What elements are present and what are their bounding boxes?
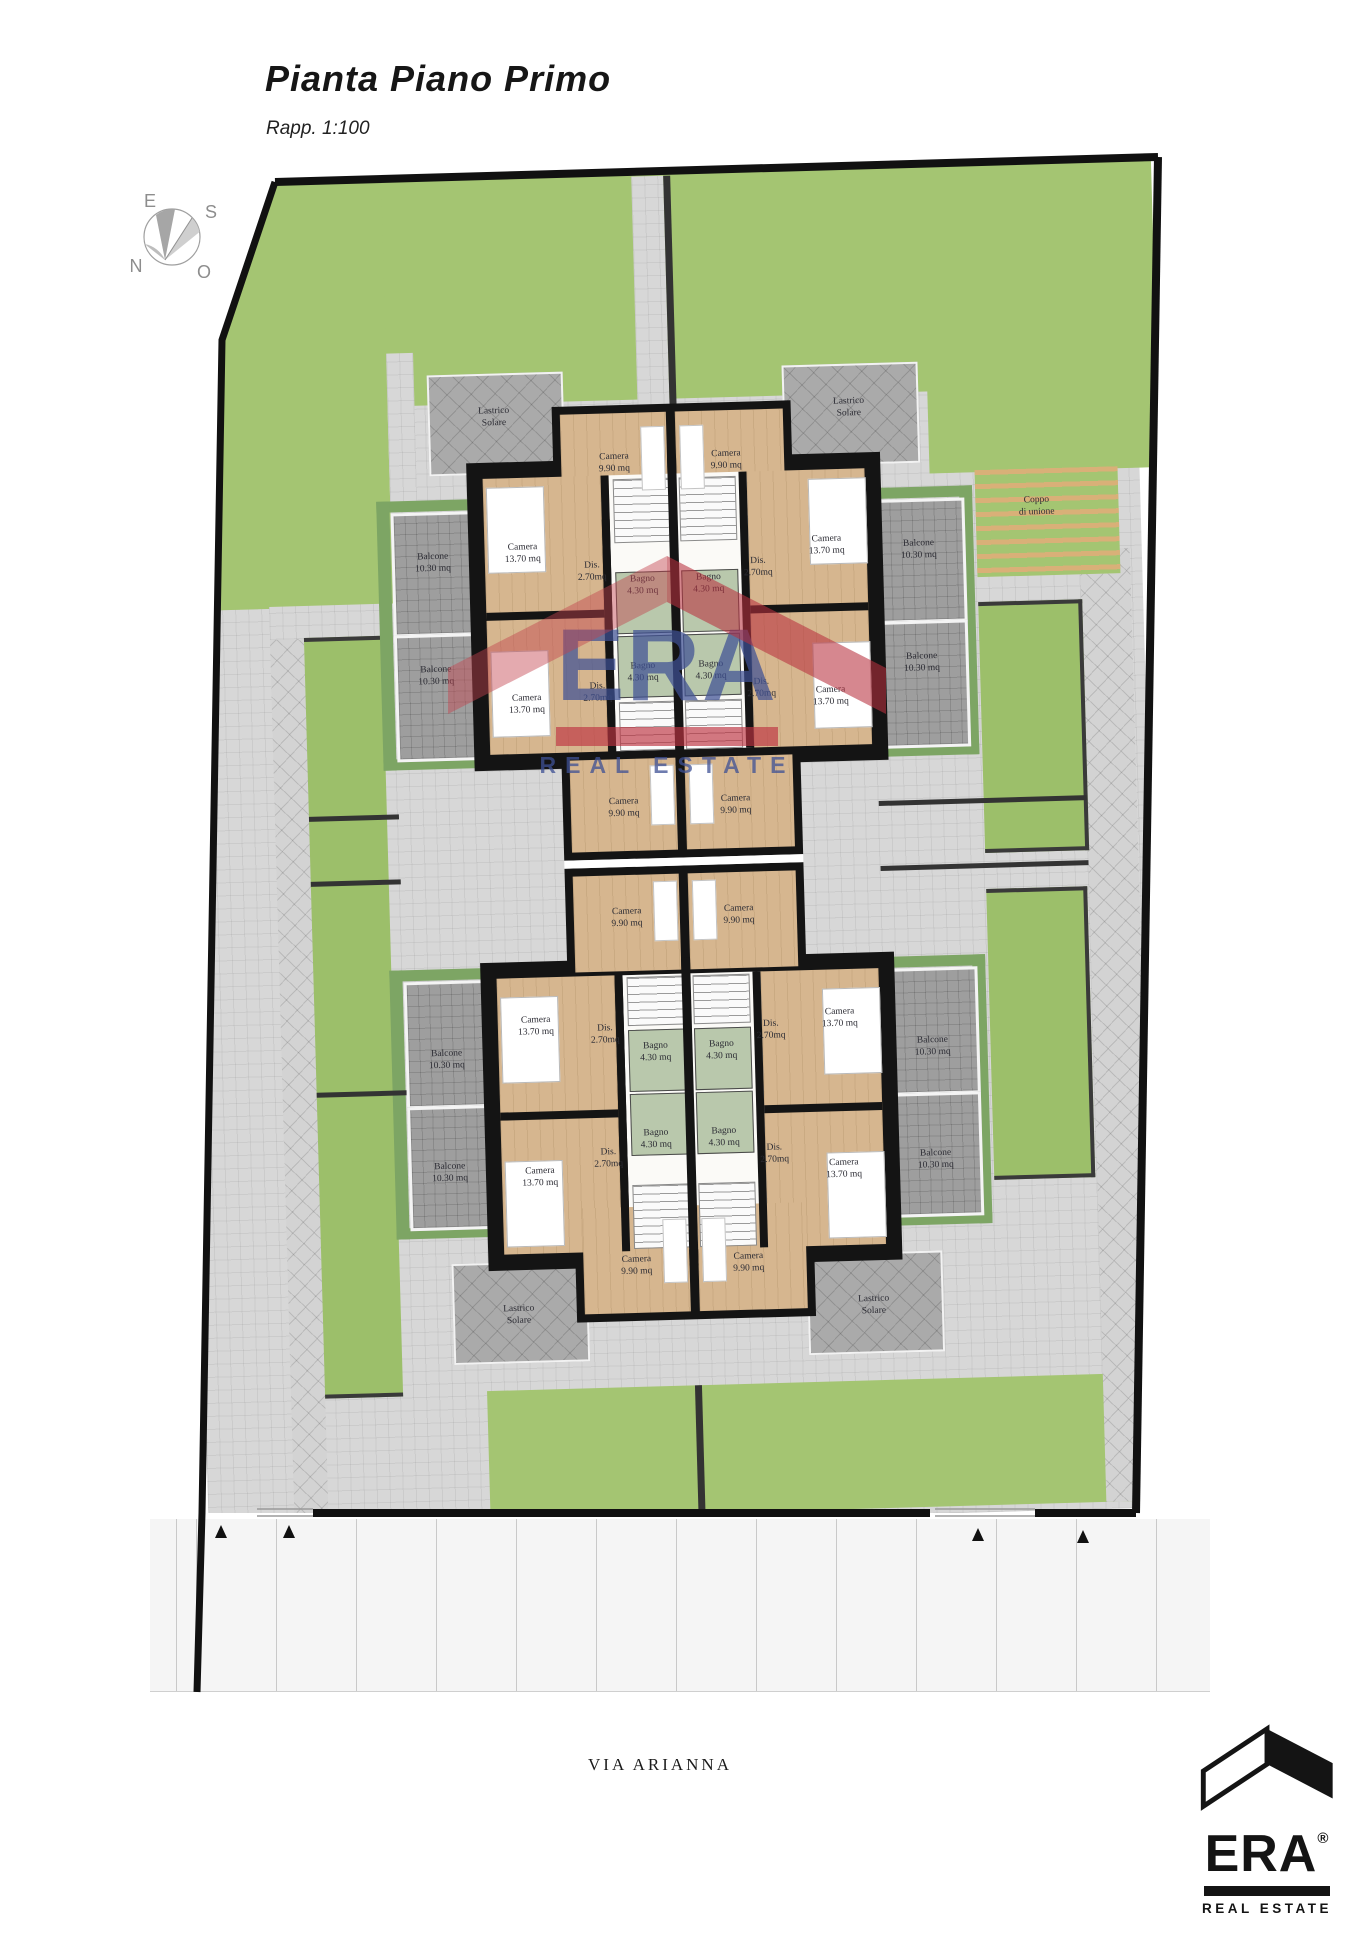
room-label-balcone: Balcone10.30 mq [415, 551, 452, 577]
floor-plan-page: { "header": {"title": "Pianta Piano Prim… [0, 0, 1358, 1920]
street-name: VIA ARIANNA [530, 1755, 790, 1775]
room-label-camera: Camera13.70 mq [504, 541, 541, 567]
room-label-camera: Camera13.70 mq [812, 683, 849, 709]
era-watermark-tagline: REAL ESTATE [528, 752, 806, 779]
room-label-camera: Camera13.70 mq [826, 1156, 863, 1182]
room-label-dis: Dis.2.70mq [756, 1017, 785, 1042]
bed-furniture [500, 996, 560, 1084]
room-label-camera: Camera9.90 mq [723, 902, 755, 928]
room-label-camera: Camera13.70 mq [821, 1005, 858, 1031]
room-label-bagno: Bagno4.30 mq [693, 571, 725, 597]
room-label-balcone: Balcone10.30 mq [914, 1034, 951, 1060]
room-label-camera: Camera9.90 mq [733, 1250, 765, 1276]
room-label-balcone: Balcone10.30 mq [428, 1047, 465, 1073]
room-label-bagno: Bagno4.30 mq [640, 1040, 672, 1066]
compass-e-label: E [144, 192, 156, 211]
page-scale: Rapp. 1:100 [266, 118, 370, 140]
registered-mark: ® [1317, 1830, 1329, 1847]
room-label-camera: Camera13.70 mq [522, 1165, 559, 1191]
bed-furniture [822, 987, 882, 1075]
room-label-balcone: Balcone10.30 mq [900, 537, 937, 563]
garden-bottom-band [487, 1373, 1150, 1519]
room-label-lastrico: LastricoSolare [833, 395, 865, 421]
closet-furniture [679, 425, 705, 490]
era-watermark-bar [556, 727, 778, 746]
parking-edge-line [150, 1691, 1210, 1692]
closet-furniture [701, 1217, 727, 1282]
room-label-camera: Camera9.90 mq [598, 450, 630, 476]
room-label-balcone: Balcone10.30 mq [418, 663, 455, 689]
balcone-deck [888, 966, 981, 1095]
compass-rose-icon: E S N O [130, 192, 240, 302]
room-label-balcone: Balcone10.30 mq [432, 1160, 469, 1186]
closet-furniture [662, 1219, 688, 1284]
garden-right-lower [986, 886, 1095, 1180]
path-upper-left [386, 353, 417, 506]
room-label-bagno: Bagno4.30 mq [706, 1038, 738, 1064]
room-label-camera: Camera9.90 mq [621, 1253, 653, 1279]
entrance-arrow-icon [283, 1525, 295, 1538]
room-label-lastrico: LastricoSolare [858, 1293, 890, 1319]
era-logo-brand: ERA® [1193, 1828, 1341, 1880]
pergola-coppo-di-unione [975, 466, 1121, 577]
room-label-lastrico: LastricoSolare [478, 405, 510, 431]
compass-s-label: S [205, 202, 217, 222]
era-logo-bar [1204, 1886, 1330, 1896]
era-watermark-brand: ERA [540, 614, 794, 716]
garden-top-right [927, 382, 1159, 473]
garden-right-upper [978, 599, 1089, 853]
room-label-bagno: Bagno4.30 mq [708, 1125, 740, 1151]
room-label-camera: Camera9.90 mq [611, 905, 643, 931]
era-logo-roof-icon [1193, 1723, 1341, 1821]
balcone-deck [879, 619, 972, 748]
closet-furniture [653, 881, 679, 942]
era-logo-tagline: REAL ESTATE [1193, 1901, 1341, 1916]
entrance-arrow-icon [972, 1528, 984, 1541]
page-title: Pianta Piano Primo [265, 58, 611, 100]
room-label-camera: Camera9.90 mq [608, 795, 640, 821]
room-label-dis: Dis.2.70mq [590, 1022, 619, 1047]
room-label-balcone: Balcone10.30 mq [904, 650, 941, 676]
era-logo: ERA® REAL ESTATE [1193, 1723, 1341, 1916]
stairwell [627, 976, 685, 1027]
closet-furniture [692, 880, 718, 941]
pergola-label: Coppodi unione [1018, 494, 1054, 520]
room-label-dis: Dis.2.70mq [594, 1146, 623, 1171]
closet-furniture [640, 426, 666, 491]
room-label-camera: Camera9.90 mq [720, 792, 752, 818]
room-label-balcone: Balcone10.30 mq [917, 1147, 954, 1173]
parking-strip [150, 1519, 1210, 1691]
compass-n-label: N [130, 256, 143, 276]
room-label-camera: Camera9.90 mq [710, 447, 742, 473]
room-label-lastrico: LastricoSolare [503, 1302, 535, 1328]
room-label-bagno: Bagno4.30 mq [640, 1127, 672, 1153]
room-label-camera: Camera13.70 mq [518, 1014, 555, 1040]
room-label-bagno: Bagno4.30 mq [627, 573, 659, 599]
room-label-dis: Dis.2.70mq [760, 1141, 789, 1166]
compass-o-label: O [197, 262, 211, 282]
path-left-crossing [269, 603, 394, 639]
stairwell [692, 974, 750, 1025]
room-label-dis: Dis.2.70mq [577, 559, 606, 584]
room-label-camera: Camera13.70 mq [808, 533, 845, 559]
entrance-arrow-icon [215, 1525, 227, 1538]
entrance-arrow-icon [1077, 1530, 1089, 1543]
room-label-dis: Dis.2.70mq [743, 555, 772, 580]
